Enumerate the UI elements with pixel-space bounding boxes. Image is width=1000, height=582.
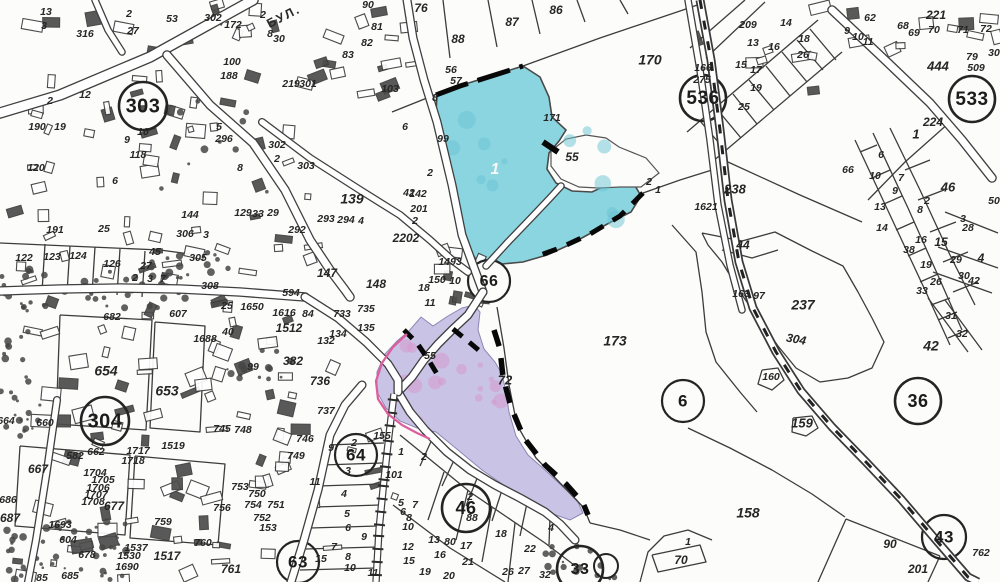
parcel-label: 13 [40,6,52,18]
water-texture-blob [501,158,507,164]
highlight-texture-blob [489,377,494,382]
parcel-label: 81 [371,21,383,33]
parcel-label: 201 [907,562,928,576]
parcel-label: 1650 [240,301,264,313]
parcel-label: 173 [603,333,627,349]
parcel-label: 749 [287,450,305,462]
tree-blob [160,295,167,302]
parcel-label: 1512 [276,321,303,335]
parcel-label: 12 [402,541,414,553]
parcel-label: 2 [645,176,652,188]
parcel-label: 1708 [81,496,105,508]
parcel-label: 86 [549,3,563,17]
parcel-label: 444 [926,58,949,73]
building [47,75,55,88]
parcel-label: 201 [409,203,428,215]
parcel-label: 190 [28,121,46,133]
tree-blob [8,547,14,553]
parcel-label: 306 [176,228,194,240]
parcel-label: 22 [523,543,536,555]
tree-blob [147,303,153,309]
parcel-label: 2 [426,167,433,179]
highlight-texture-blob [478,362,484,368]
building [277,400,295,417]
parcel-label: 4 [357,215,364,227]
parcel-label: 45 [148,246,161,258]
tree-blob [24,375,28,379]
tree-blob [187,162,190,165]
parcel-label: 19 [750,82,762,94]
parcel-label: 46 [940,179,956,194]
water-texture-blob [595,175,611,191]
parcel-label: 71 [957,24,969,36]
parcel-label: 120 [27,162,45,174]
tree-blob [85,536,88,539]
road-tick [375,511,386,512]
parcel-label: 27 [517,565,531,577]
parcel-label: 55 [565,150,579,164]
parcel-label: 10 [137,126,149,138]
parcel-label: 14 [780,17,792,29]
tree-blob [20,302,23,305]
parcel-label: 103 [381,83,399,95]
tree-blob [26,418,29,421]
tree-blob [25,309,28,312]
parcel-label: 582 [66,450,84,462]
building [156,70,163,82]
parcel-label: 5 [344,508,350,520]
parcel-label: 756 [213,502,231,514]
parcel-label: 191 [46,224,64,236]
parcel-label: 14 [876,222,888,234]
tree-blob [79,567,84,572]
highlight-texture-blob [438,377,446,385]
tree-blob [260,348,265,353]
parcel-label: 19 [920,259,932,271]
parcel-label: 660 [36,417,54,429]
parcel-label: 15 [735,59,747,71]
parcel-label: 13 [428,534,440,546]
parcel-label: 12 [79,89,91,101]
tree-blob [19,533,27,541]
water-texture-blob [583,126,592,135]
parcel-label: 118 [130,149,147,161]
tree-blob [2,355,10,363]
parcel-label: 759 [154,516,172,528]
parcel-label: 76 [414,1,428,15]
building [59,378,78,389]
parcel-label: 87 [505,15,520,29]
parcel-label: 735 [357,303,375,315]
parcel-label: 44 [735,238,750,252]
parcel-label: 303 [297,160,315,172]
parcel-label: 33 [252,208,264,220]
road-tick [380,466,391,467]
tree-blob [240,374,243,377]
parcel-label: 11 [310,476,321,488]
parcel-label: 99 [437,133,449,145]
parcel-label: 1 [655,184,661,196]
parcel-label: 653 [155,383,179,399]
tree-blob [121,304,128,311]
building [13,558,23,564]
parcel-label: 16 [915,234,927,246]
parcel-label: 594 [282,287,300,299]
tree-blob [112,546,116,550]
parcel-label: 50 [988,195,1000,207]
tree-blob [20,357,25,362]
parcel-label: 19 [54,121,66,133]
parcel-label: 1718 [121,455,145,467]
parcel-label: 296 [214,133,233,145]
parcel-label: 13 [747,37,759,49]
parcel-label: 40 [221,326,234,338]
tree-blob [177,109,184,116]
zone-circle-label: 304 [88,410,123,432]
parcel-label: 8 [237,162,243,174]
parcel-label: 100 [223,56,241,68]
road-tick [378,485,389,486]
building [305,194,311,200]
highlight-texture-blob [475,394,483,402]
parcel-label: 29 [266,207,279,219]
zone-circle-label: 66 [480,273,499,290]
tree-blob [94,278,99,283]
tree-blob [176,276,179,279]
parcel-label: 9 [124,134,130,146]
building [847,7,860,19]
tree-blob [100,574,104,578]
parcel-label: 124 [69,250,87,262]
parcel-label: 1693 [48,519,72,531]
parcel-label: 147 [317,266,338,280]
parcel-label: 171 [543,112,561,124]
tree-blob [226,368,228,370]
parcel-label: 55 [424,350,436,362]
parcel-label: 42 [922,338,939,354]
building [188,126,194,133]
parcel-label: 83 [342,49,354,61]
parcel-label: 16 [434,549,446,561]
tree-blob [22,273,29,280]
tree-blob [280,376,283,379]
tree-blob [123,277,129,283]
parcel-label: 163 [732,288,750,300]
building [203,192,217,205]
parcel-label: 686 [0,494,17,506]
highlight-texture-blob [456,364,467,375]
zone-circle-label: 46 [455,498,476,518]
zone-circle-label: 33 [571,561,590,578]
parcel-label: 2 [273,153,280,165]
parcel-label: 158 [736,505,760,521]
parcel-label: 70 [674,553,688,567]
parcel-label: 85 [36,572,48,582]
building [124,217,130,227]
road-tick [374,524,385,525]
parcel-label: 10 [344,562,356,574]
building [172,478,183,490]
road-tick [385,425,396,426]
building [808,52,817,61]
parcel-label: 8 [432,92,438,104]
highlight-texture-blob [434,353,450,369]
tree-blob [2,352,6,356]
building [175,463,192,477]
tree-blob [99,544,105,550]
tree-blob [108,577,113,582]
tree-blob [41,566,44,569]
parcel-label: 2 [125,8,132,20]
parcel-label: 26 [501,566,514,578]
parcel-label: 221 [925,8,946,22]
parcel-label: 10 [402,521,414,533]
parcel-label: 667 [28,462,49,476]
building [896,43,905,49]
parcel-label: 292 [287,224,306,236]
parcel-label: 275 [692,74,711,86]
water-texture-blob [477,175,486,184]
parcel-label: 1 [398,446,404,458]
parcel-label: 122 [15,252,33,264]
tree-blob [240,118,247,125]
parcel-label: 4 [547,522,554,534]
parcel-label: 5 [216,121,222,133]
tree-blob [117,537,119,539]
tree-blob [103,518,110,525]
tree-blob [25,378,31,384]
parcel-label: 62 [864,12,876,24]
tree-blob [6,343,13,350]
parcel-label: 97 [753,290,766,302]
building [84,129,95,138]
tree-blob [86,529,92,535]
parcel-label: 144 [181,209,199,221]
parcel-label: 682 [103,311,121,323]
parcel-label: 748 [234,424,252,436]
parcel-label: 6 [345,522,351,534]
parcel-label: 72 [498,372,513,387]
parcel-label: 8 [917,204,923,216]
parcel-label: 4 [340,488,347,500]
tree-blob [93,296,99,302]
building [128,479,144,489]
parcel-label: 18 [418,282,430,294]
parcel-label: 654 [94,363,118,379]
tree-blob [207,268,215,276]
parcel-label: 20 [442,570,455,582]
building [122,326,136,340]
parcel-label: 26 [796,49,809,61]
parcel-label: 32 [539,569,551,581]
tree-blob [26,410,32,416]
parcel-label: 155 [373,430,391,442]
tree-blob [41,272,48,279]
parcel-label: 11 [368,567,379,579]
parcel-label: 42 [967,275,980,287]
parcel-label: 139 [340,191,364,207]
tree-blob [102,296,107,301]
parcel-label: 1616 [272,307,296,319]
parcel-label: 17 [460,540,473,552]
building [275,462,288,471]
tree-blob [225,266,230,271]
tree-blob [179,276,183,280]
parcel-label: 18 [798,33,810,45]
tree-blob [104,572,107,575]
tree-blob [38,403,41,406]
tree-blob [182,253,185,256]
tree-blob [9,390,13,394]
parcel-label: 664 [0,415,15,427]
parcel-label: 2 [420,451,427,463]
parcel-label: 32 [956,328,968,340]
tree-blob [176,262,184,270]
building [385,35,398,41]
parcel-label: 19 [419,566,431,578]
parcel-label: 762 [972,547,990,559]
parcel-label: 6 [878,149,884,161]
building [274,244,283,251]
building [97,177,104,187]
parcel-label: 3 [203,229,209,241]
road-tick [372,562,383,563]
building [275,235,293,244]
parcel-label: 15 [934,235,948,249]
parcel-label: 132 [317,335,335,347]
water-texture-blob [458,111,476,129]
parcel-label: 126 [103,258,121,270]
cadastral-map-canvas[interactable]: 1332273165330217228100188219301122190191… [0,0,1000,582]
parcel-label: 382 [283,354,303,368]
parcel-label: 99 [247,361,259,373]
tree-blob [21,305,26,310]
parcel-label: 2 [131,272,138,284]
zone-circle-label: 533 [955,89,988,110]
tree-blob [186,273,189,276]
parcel-label: 3 [41,20,47,32]
parcel-label: 238 [723,181,746,196]
parcel-label: 27 [126,25,140,37]
parcel-label: 66 [842,164,854,176]
building [213,542,220,547]
tree-blob [19,418,22,421]
parcel-label: 9 [361,531,367,543]
parcel-label: 6 [402,121,408,133]
tree-blob [232,146,238,152]
parcel-label: 172 [224,19,242,31]
parcel-label: 30 [273,33,285,45]
parcel-label: 188 [220,70,238,82]
tree-blob [16,399,19,402]
parcel-label: 1517 [154,549,182,563]
parcel-label: 237 [790,297,816,313]
parcel-label: 135 [357,322,375,334]
parcel-label: 25 [220,300,233,312]
parcel-label: 28 [961,222,974,234]
parcel-label: 129 [234,207,252,219]
building [69,354,89,370]
tree-blob [31,427,34,430]
parcel-label: 677 [104,499,125,513]
parcel-label: 11 [425,297,436,309]
parcel-label: 685 [61,570,79,582]
parcel-label: 90 [362,0,374,11]
parcel-label: 160 [762,371,780,383]
parcel-label: 31 [945,310,957,322]
parcel-label: 2202 [392,231,420,245]
parcel-label: 17 [750,64,763,76]
parcel-label: 159 [791,415,813,430]
parcel-label: 662 [87,446,105,458]
parcel-label: 733 [333,308,351,320]
building [174,536,182,543]
tree-blob [19,335,23,339]
parcel-label: 316 [76,28,94,40]
parcel-label: 30 [988,47,1000,59]
tree-blob [25,329,30,334]
parcel-label: 1519 [161,440,185,452]
tree-blob [27,269,31,273]
parcel-label: 13 [874,201,886,213]
tree-blob [39,562,43,566]
parcel-label: 15 [315,553,327,565]
parcel-label: 607 [169,308,188,320]
parcel-label: 80 [444,536,456,548]
parcel-label: 209 [738,19,757,31]
tree-blob [201,145,209,153]
parcel-label: 33 [916,285,928,297]
parcel-label: 301 [299,78,317,90]
tree-blob [51,562,55,566]
building [807,86,819,95]
parcel-label: 509 [967,62,985,74]
tree-blob [215,257,220,262]
parcel-label: 166 [694,62,712,74]
parcel-label: 1 [685,536,691,548]
parcel-label: 3 [345,465,351,477]
tree-blob [120,574,125,579]
parcel-label: 123 [43,251,61,263]
building [60,251,70,262]
building [149,231,162,242]
tree-blob [166,256,170,260]
parcel-label: 21 [461,556,474,568]
tree-blob [258,376,261,379]
parcel-label: 751 [267,499,285,511]
building [195,378,212,391]
parcel-label: 9 [844,25,850,37]
tree-blob [3,527,10,534]
parcel-label: 219 [281,78,300,90]
tree-blob [266,377,271,382]
tree-blob [118,543,121,546]
tree-blob [266,365,273,372]
parcel-label: 84 [302,308,314,320]
tree-blob [181,294,188,301]
parcel-label: 293 [316,213,335,225]
parcel-label: 38 [903,244,915,256]
road-tick [373,536,384,537]
tree-blob [159,186,164,191]
parcel-label: 2 [923,195,930,207]
parcel-label: 4 [977,251,985,265]
building [261,549,275,559]
parcel-label: 9 [892,185,898,197]
building [258,337,278,350]
tree-blob [108,270,112,274]
building [138,358,157,370]
